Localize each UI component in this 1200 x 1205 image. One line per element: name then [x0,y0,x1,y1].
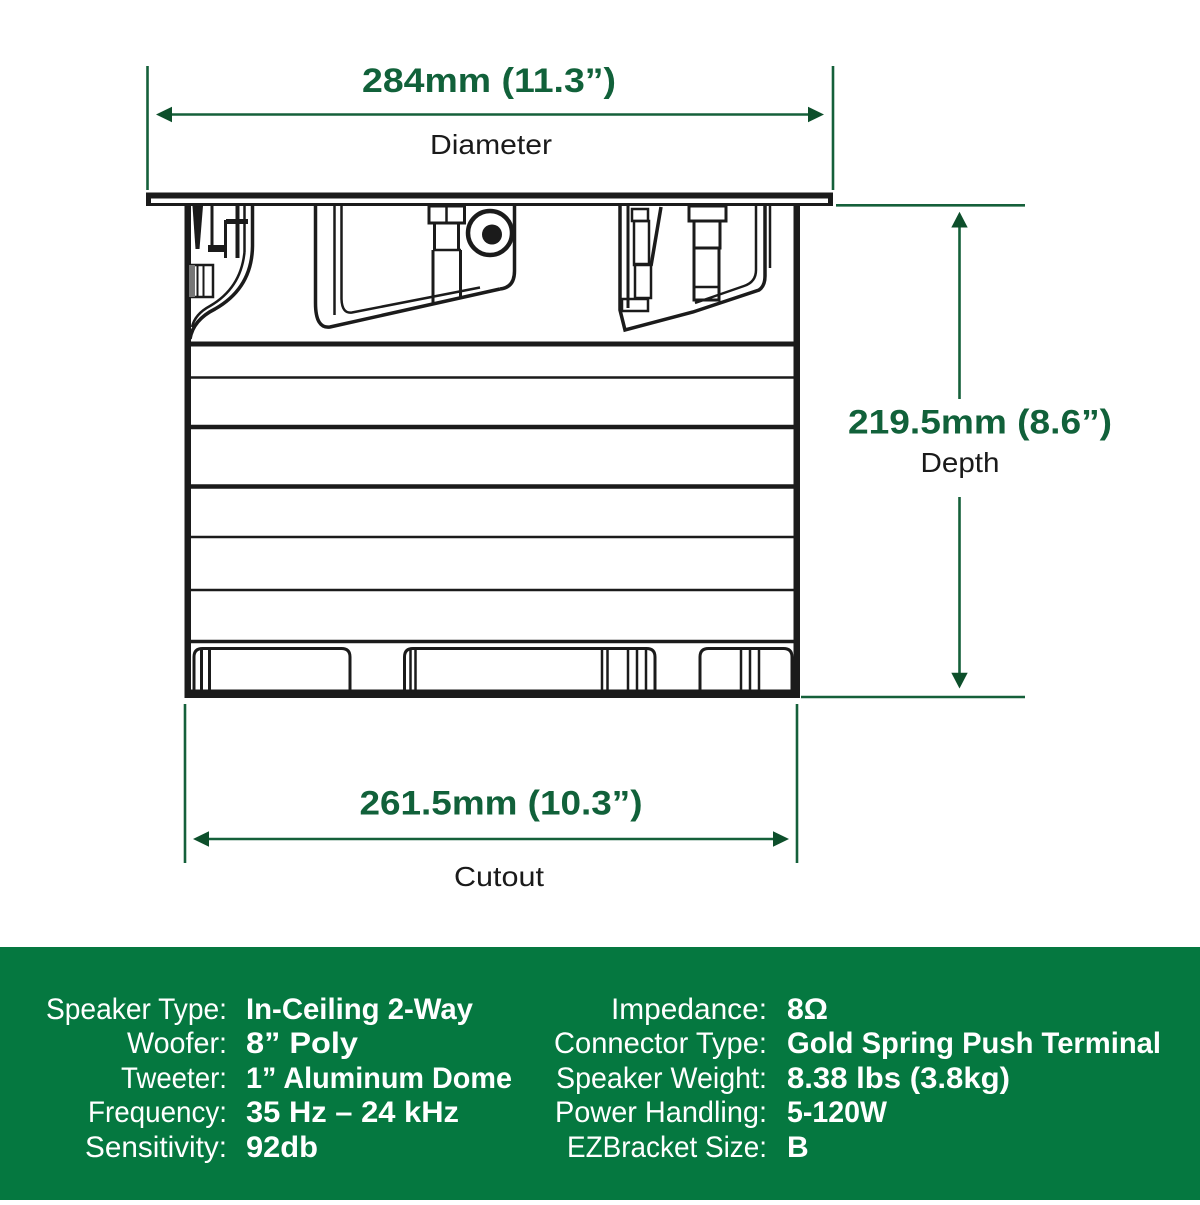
svg-text:Depth: Depth [921,447,1000,478]
svg-text:Cutout: Cutout [454,861,544,892]
svg-text:261.5mm (10.3”): 261.5mm (10.3”) [360,785,643,823]
svg-text:B: B [787,1131,809,1164]
svg-text:EZBracket Size:: EZBracket Size: [567,1131,767,1164]
svg-text:Power Handling:: Power Handling: [555,1096,767,1129]
svg-text:Tweeter:: Tweeter: [121,1062,227,1095]
svg-text:35 Hz – 24 kHz: 35 Hz – 24 kHz [246,1096,459,1129]
svg-text:In-Ceiling 2-Way: In-Ceiling 2-Way [246,993,473,1026]
svg-text:Frequency:: Frequency: [88,1096,227,1129]
svg-text:92db: 92db [246,1131,318,1164]
svg-text:284mm (11.3”): 284mm (11.3”) [362,62,616,100]
svg-text:Woofer:: Woofer: [127,1027,227,1060]
svg-text:8Ω: 8Ω [787,993,828,1026]
svg-text:Sensitivity:: Sensitivity: [85,1131,227,1164]
svg-text:Impedance:: Impedance: [611,993,767,1026]
svg-text:1” Aluminum Dome: 1” Aluminum Dome [246,1062,512,1095]
svg-text:8.38 lbs (3.8kg): 8.38 lbs (3.8kg) [787,1062,1010,1095]
svg-text:Diameter: Diameter [430,129,552,160]
svg-text:Speaker Type:: Speaker Type: [46,993,227,1026]
svg-text:8” Poly: 8” Poly [246,1027,358,1060]
svg-text:Connector Type:: Connector Type: [554,1027,767,1060]
svg-text:219.5mm (8.6”): 219.5mm (8.6”) [848,404,1112,442]
svg-text:Speaker Weight:: Speaker Weight: [556,1062,767,1095]
svg-text:5-120W: 5-120W [787,1096,888,1129]
svg-text:Gold Spring Push Terminal: Gold Spring Push Terminal [787,1027,1161,1060]
